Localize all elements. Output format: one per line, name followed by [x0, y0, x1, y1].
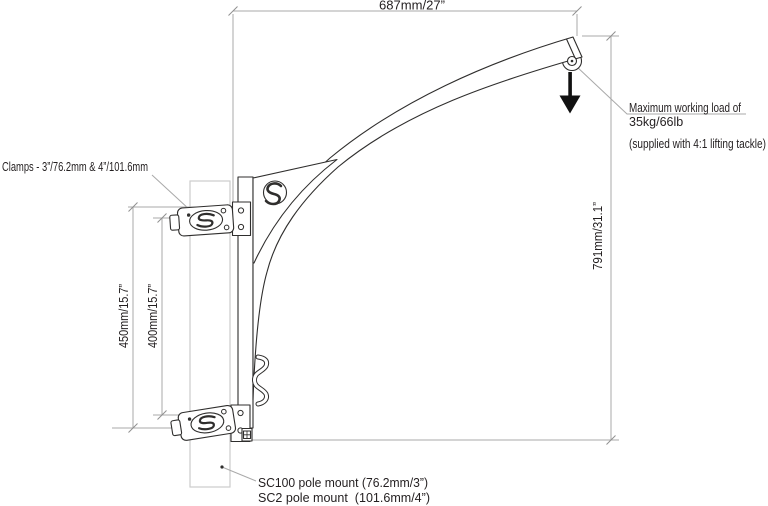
- mount-leader: [222, 467, 256, 481]
- drawing-svg: 687mm/27” 791mm/31.1” 450mm/15.7” 400mm/…: [0, 0, 768, 506]
- max-load-note-line2: 35kg/66lb: [629, 115, 683, 129]
- bottom-foot: [242, 429, 252, 442]
- top-clamp-body: [169, 205, 234, 237]
- mount-leader-dot: [220, 465, 223, 468]
- clamps-leader: [152, 175, 190, 210]
- bottom-clamp-body: [170, 405, 237, 443]
- dim-right-label: 791mm/31.1”: [590, 202, 605, 270]
- bottom-clamp: [170, 405, 252, 443]
- davit-arm: [253, 37, 582, 400]
- down-arrow-icon: [560, 72, 581, 114]
- dim-left-outer-label: 450mm/15.7”: [116, 284, 131, 348]
- davit-arm-technical-drawing: 687mm/27” 791mm/31.1” 450mm/15.7” 400mm/…: [0, 0, 768, 506]
- cleat-hook-icon: [255, 357, 267, 404]
- dim-top-label: 687mm/27”: [379, 0, 445, 13]
- dim-left-inner-label: 400mm/15.7”: [145, 284, 160, 348]
- mount-note-line1: SC100 pole mount (76.2mm/3”): [258, 476, 428, 490]
- mount-note-line2: SC2 pole mount (101.6mm/4”): [258, 491, 430, 505]
- clamps-note: Clamps - 3”/76.2mm & 4”/101.6mm: [2, 160, 148, 174]
- max-load-note-line1: Maximum working load of: [629, 101, 741, 115]
- pulley-sheave: [568, 57, 577, 66]
- s-logo-icon: [264, 181, 287, 204]
- supplied-note: (supplied with 4:1 lifting tackle): [629, 137, 766, 151]
- top-clamp-bracket: [233, 202, 251, 236]
